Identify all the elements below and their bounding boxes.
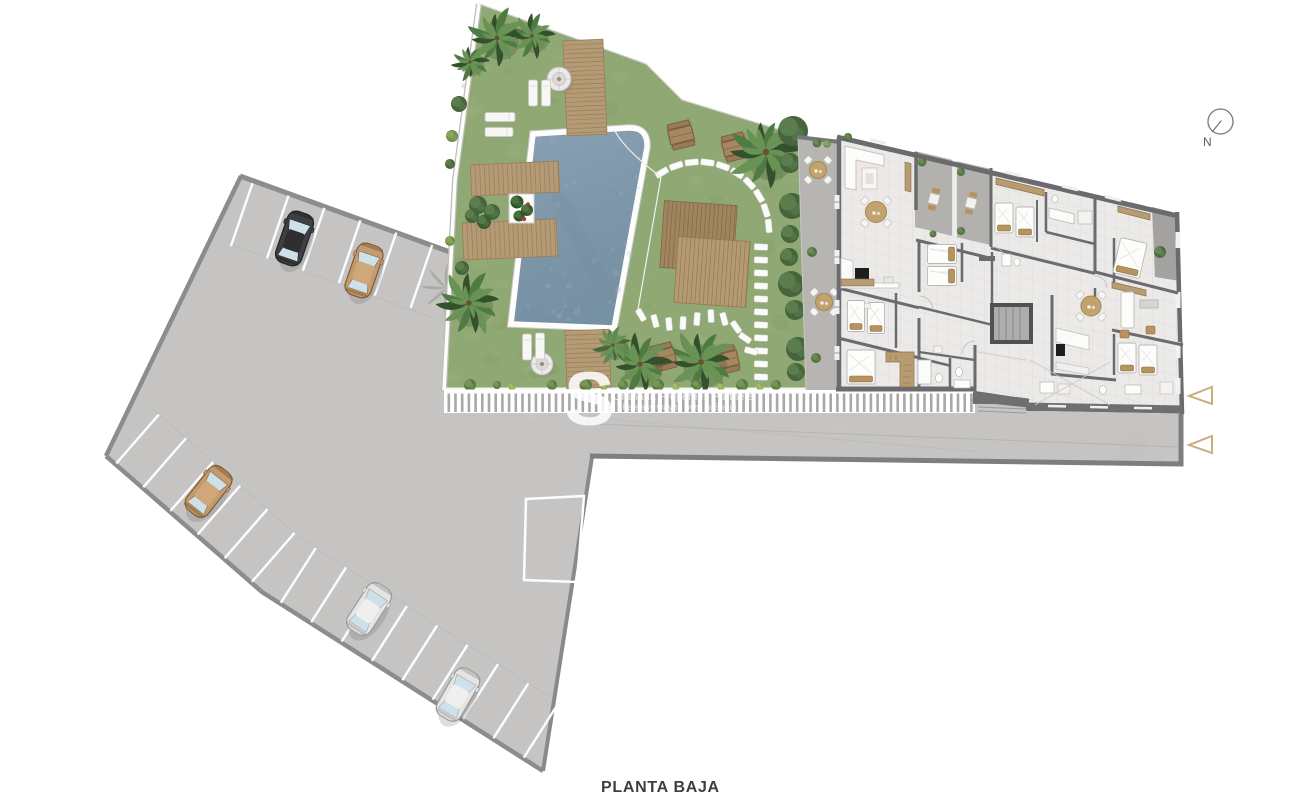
svg-text:The easy way to own in Spain: The easy way to own in Spain [617, 402, 737, 412]
svg-text:PLANTA BAJA: PLANTA BAJA [601, 779, 720, 796]
svg-text:N: N [1203, 135, 1212, 149]
svg-text:S: S [564, 357, 615, 442]
